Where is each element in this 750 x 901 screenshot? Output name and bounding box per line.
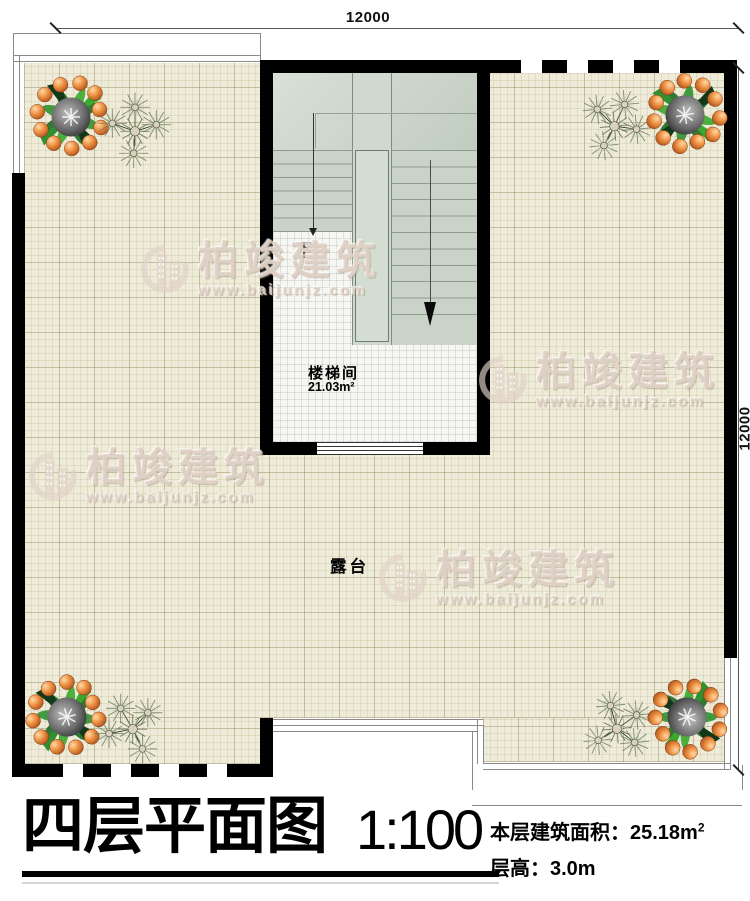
floor-height-label: 层高： (490, 858, 550, 880)
wall-corner-l (260, 718, 273, 777)
plan-scale: 1:100 (356, 802, 481, 858)
wall-bottom-left-solid (12, 764, 35, 777)
brand-name: 柏竣建筑 (86, 448, 270, 488)
eave-line (472, 805, 742, 806)
brand-name: 柏竣建筑 (536, 352, 720, 392)
edge-line (13, 61, 260, 62)
stair-gray-bottom-right (392, 330, 477, 345)
floor-area-label: 本层建筑面积： (490, 822, 630, 844)
brand-name: 柏竣建筑 (198, 241, 382, 281)
brand-name: 柏竣建筑 (436, 550, 620, 590)
watermark: 柏竣建筑 www.baijunjz.com (26, 448, 270, 506)
dimension-right-value: 12000 (737, 384, 750, 474)
dimension-top-value: 12000 (318, 9, 418, 26)
edge-line (477, 719, 478, 764)
edge-line (13, 33, 260, 34)
stairwell-area: 21.03m² (308, 380, 355, 394)
floor-area-value: 25.18m (630, 822, 698, 844)
plan-title: 四层平面图 (22, 796, 327, 858)
railing-top-right (521, 60, 683, 73)
floor-area-exponent: 2 (698, 820, 705, 834)
floor-plan-canvas: 下 楼梯间 21.03m² 露台 12000 12000 柏竣建筑 www.ba… (0, 0, 750, 901)
edge-line (273, 719, 483, 720)
edge-line (273, 731, 477, 732)
brand-url: www.baijunjz.com (536, 393, 720, 410)
brand-logo-icon (26, 448, 78, 506)
watermark: 柏竣建筑 www.baijunjz.com (376, 550, 620, 608)
title-underline (22, 871, 499, 877)
edge-line (19, 55, 20, 173)
edge-line (13, 55, 260, 56)
orange-tree-icon (633, 63, 737, 167)
edge-line (260, 33, 261, 60)
fan-palm-icon (95, 90, 175, 170)
brand-logo-icon (138, 241, 190, 299)
walk-line-left (313, 113, 314, 229)
stair-landing-outline (315, 113, 477, 148)
walk-line-right (430, 160, 431, 302)
watermark: 柏竣建筑 www.baijunjz.com (138, 241, 382, 299)
title-underline-thin (22, 882, 499, 884)
walk-line-left-arrow-icon (309, 228, 317, 236)
wall-top-right-solid (490, 60, 521, 73)
edge-line (273, 725, 483, 726)
brand-logo-icon (476, 352, 528, 410)
title-block: 四层平面图 1:100 本层建筑面积：25.18m2 层高：3.0m (0, 790, 750, 901)
edge-line (13, 33, 14, 173)
down-arrow-icon (424, 302, 436, 326)
brand-url: www.baijunjz.com (198, 282, 382, 299)
brand-url: www.baijunjz.com (86, 489, 270, 506)
stair-window (317, 442, 423, 455)
floor-height-text: 层高：3.0m (490, 852, 596, 881)
floor-height-value: 3.0m (550, 858, 596, 880)
dimension-line-top (55, 28, 738, 29)
edge-line (483, 725, 484, 763)
brand-url: www.baijunjz.com (436, 591, 620, 608)
brand-logo-icon (376, 550, 428, 608)
terrace-label: 露台 (330, 553, 369, 577)
watermark: 柏竣建筑 www.baijunjz.com (476, 352, 720, 410)
floor-area-text: 本层建筑面积：25.18m2 (490, 816, 705, 845)
